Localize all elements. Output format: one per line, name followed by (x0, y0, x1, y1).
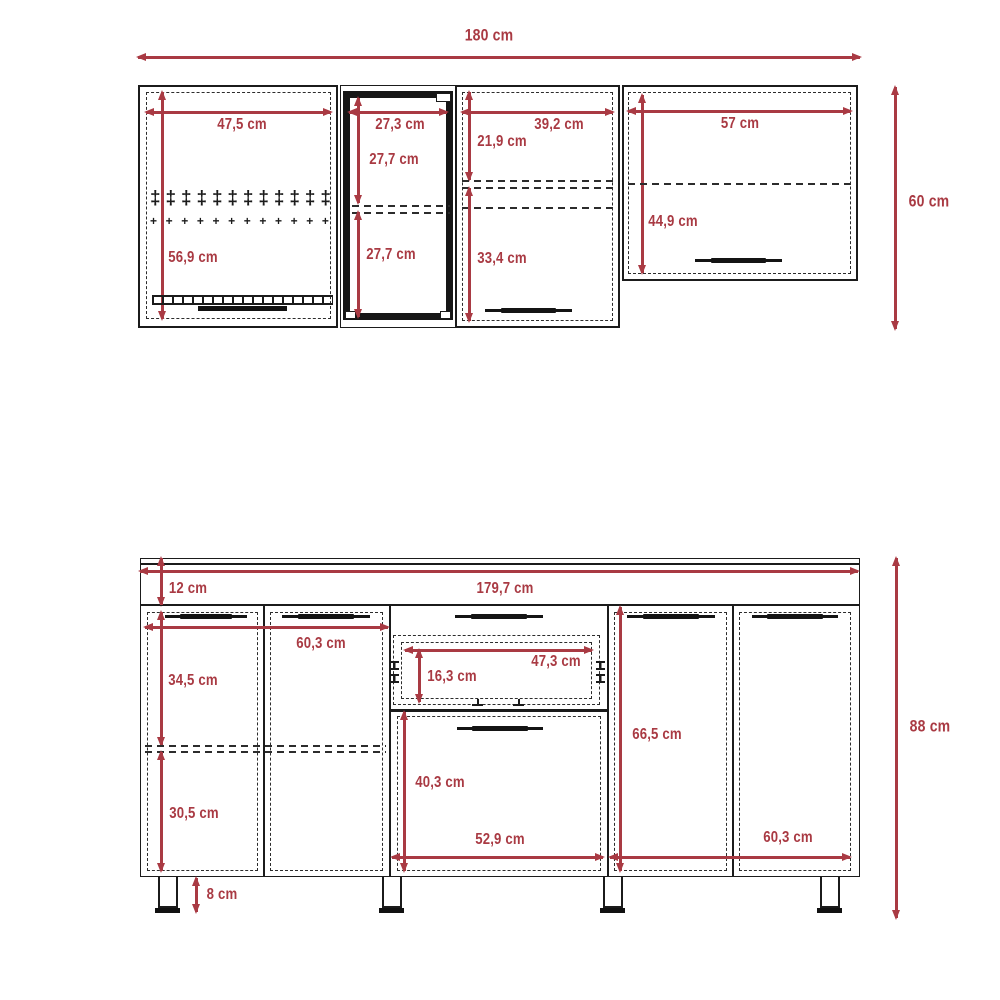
dim-drawer-height: 16,3 cm (427, 668, 477, 686)
dim-upper-total-width: 180 cm (465, 27, 514, 46)
drawer-height-arrow (418, 650, 421, 702)
drawer-handle (455, 615, 543, 618)
drawer-bottom-mark-2 (513, 699, 524, 706)
upper-cabinet-3-shelf-line-2 (462, 187, 613, 189)
leg-3-foot (600, 908, 625, 913)
lower-total-width-arrow (140, 570, 858, 573)
upper-cabinet-4-handle (695, 259, 782, 262)
right-door-1-handle (627, 615, 715, 618)
dim-leg-height: 8 cm (207, 886, 238, 904)
left-section-bottom-height-arrow (160, 752, 163, 871)
leg-3 (603, 877, 623, 908)
dim-left-section-width: 60,3 cm (296, 635, 346, 653)
center-door-height-arrow (403, 712, 406, 871)
upper-cabinet-3-width-arrow (462, 111, 613, 114)
dim-upper-cabinet-2-width: 27,3 cm (375, 116, 425, 134)
drawer-slide-right-top (596, 661, 605, 670)
leg-2 (382, 877, 402, 908)
left-door-1-handle (165, 615, 247, 618)
dim-lower-total-height: 88 cm (910, 718, 951, 737)
upper-cabinet-2-width-arrow (349, 111, 447, 114)
drawer-slide-right-bottom (596, 674, 605, 683)
dim-upper-cabinet-2-top-height: 27,7 cm (369, 151, 419, 169)
upper-cabinet-2-shelf-line-2 (352, 212, 450, 214)
dim-upper-cabinet-4-height: 44,9 cm (648, 213, 698, 231)
dim-left-section-top-height: 34,5 cm (168, 672, 218, 690)
upper-total-height-arrow (894, 87, 897, 329)
dim-countertop-thickness: 12 cm (169, 580, 207, 598)
center-section-right-divider (607, 605, 609, 877)
drawer-width-arrow (405, 649, 592, 652)
door-frame-notch (436, 93, 451, 102)
leg-2-foot (379, 908, 404, 913)
dim-upper-cabinet-2-bottom-height: 27,7 cm (366, 246, 416, 264)
drawer-slide-left-bottom (390, 674, 399, 683)
left-section-divider (263, 605, 265, 877)
lower-total-height-arrow (895, 558, 898, 918)
upper-cabinet-3-top-height-arrow (468, 92, 471, 180)
dim-left-section-bottom-height: 30,5 cm (169, 805, 219, 823)
drawer-bottom-mark-1 (472, 699, 483, 706)
left-section-top-height-arrow (160, 612, 163, 745)
upper-cabinet-3-bottom-height-arrow (468, 188, 471, 321)
countertop-thickness-arrow (160, 558, 163, 605)
upper-cabinet-4-shelf-line (628, 183, 851, 185)
drawer-slide-left-top (390, 661, 399, 670)
dim-upper-cabinet-3-top-height: 21,9 cm (477, 133, 527, 151)
upper-cabinet-2-top-height-arrow (357, 98, 360, 203)
dim-right-section-width: 60,3 cm (763, 829, 813, 847)
upper-cabinet-3-shelf-line-3 (462, 207, 613, 209)
upper-cabinet-4-width-arrow (628, 110, 851, 113)
countertop-edge-line (140, 563, 860, 565)
drawer-door-separator (390, 709, 608, 712)
center-section-left-divider (389, 605, 391, 877)
right-section-height-arrow (619, 607, 622, 871)
dim-center-section-width: 52,9 cm (475, 831, 525, 849)
dim-center-door-height: 40,3 cm (415, 774, 465, 792)
leg-1-foot (155, 908, 180, 913)
upper-cabinet-2-bottom-height-arrow (357, 212, 360, 317)
dim-upper-cabinet-3-width: 39,2 cm (534, 116, 584, 134)
dish-drainer-tray (198, 306, 287, 311)
dim-lower-total-width: 179,7 cm (476, 580, 533, 598)
left-door-2-handle (282, 615, 370, 618)
leg-4 (820, 877, 840, 908)
right-door-2-handle (752, 615, 838, 618)
plate-rack-lower-row: ++++++++++++ (150, 215, 329, 227)
dim-upper-cabinet-1-width: 47,5 cm (217, 116, 267, 134)
leg-1 (158, 877, 178, 908)
leg-4-foot (817, 908, 842, 913)
left-section-shelf-line-2 (145, 751, 386, 753)
upper-cabinet-3-handle (485, 309, 572, 312)
dim-upper-cabinet-1-height: 56,9 cm (168, 249, 218, 267)
center-section-width-arrow (392, 856, 603, 859)
upper-cabinet-2-shelf-line-1 (352, 205, 450, 207)
dim-upper-cabinet-4-width: 57 cm (721, 115, 759, 133)
door-frame-corner-right (440, 311, 451, 319)
plate-rack-row: ‡‡‡‡‡‡‡‡‡‡‡‡ (150, 189, 331, 213)
center-door-handle (457, 727, 543, 730)
cabinet-dimension-diagram: 180 cm 60 cm 47,5 cm 56,9 cm ‡‡‡‡‡‡‡‡‡‡‡… (0, 0, 1000, 1000)
dim-drawer-width: 47,3 cm (531, 653, 581, 671)
dim-right-section-height: 66,5 cm (632, 726, 682, 744)
right-section-divider (732, 605, 734, 877)
upper-cabinet-3-shelf-line-1 (462, 180, 613, 182)
left-section-shelf-line-1 (145, 745, 386, 747)
dim-upper-cabinet-3-bottom-height: 33,4 cm (477, 250, 527, 268)
upper-cabinet-1-width-arrow (146, 111, 331, 114)
left-section-width-arrow (145, 626, 388, 629)
dish-drainer-rail (152, 295, 333, 305)
right-section-width-arrow (610, 856, 850, 859)
upper-total-width-arrow (138, 56, 860, 59)
dim-upper-total-height: 60 cm (909, 193, 950, 212)
leg-height-arrow (195, 878, 198, 912)
